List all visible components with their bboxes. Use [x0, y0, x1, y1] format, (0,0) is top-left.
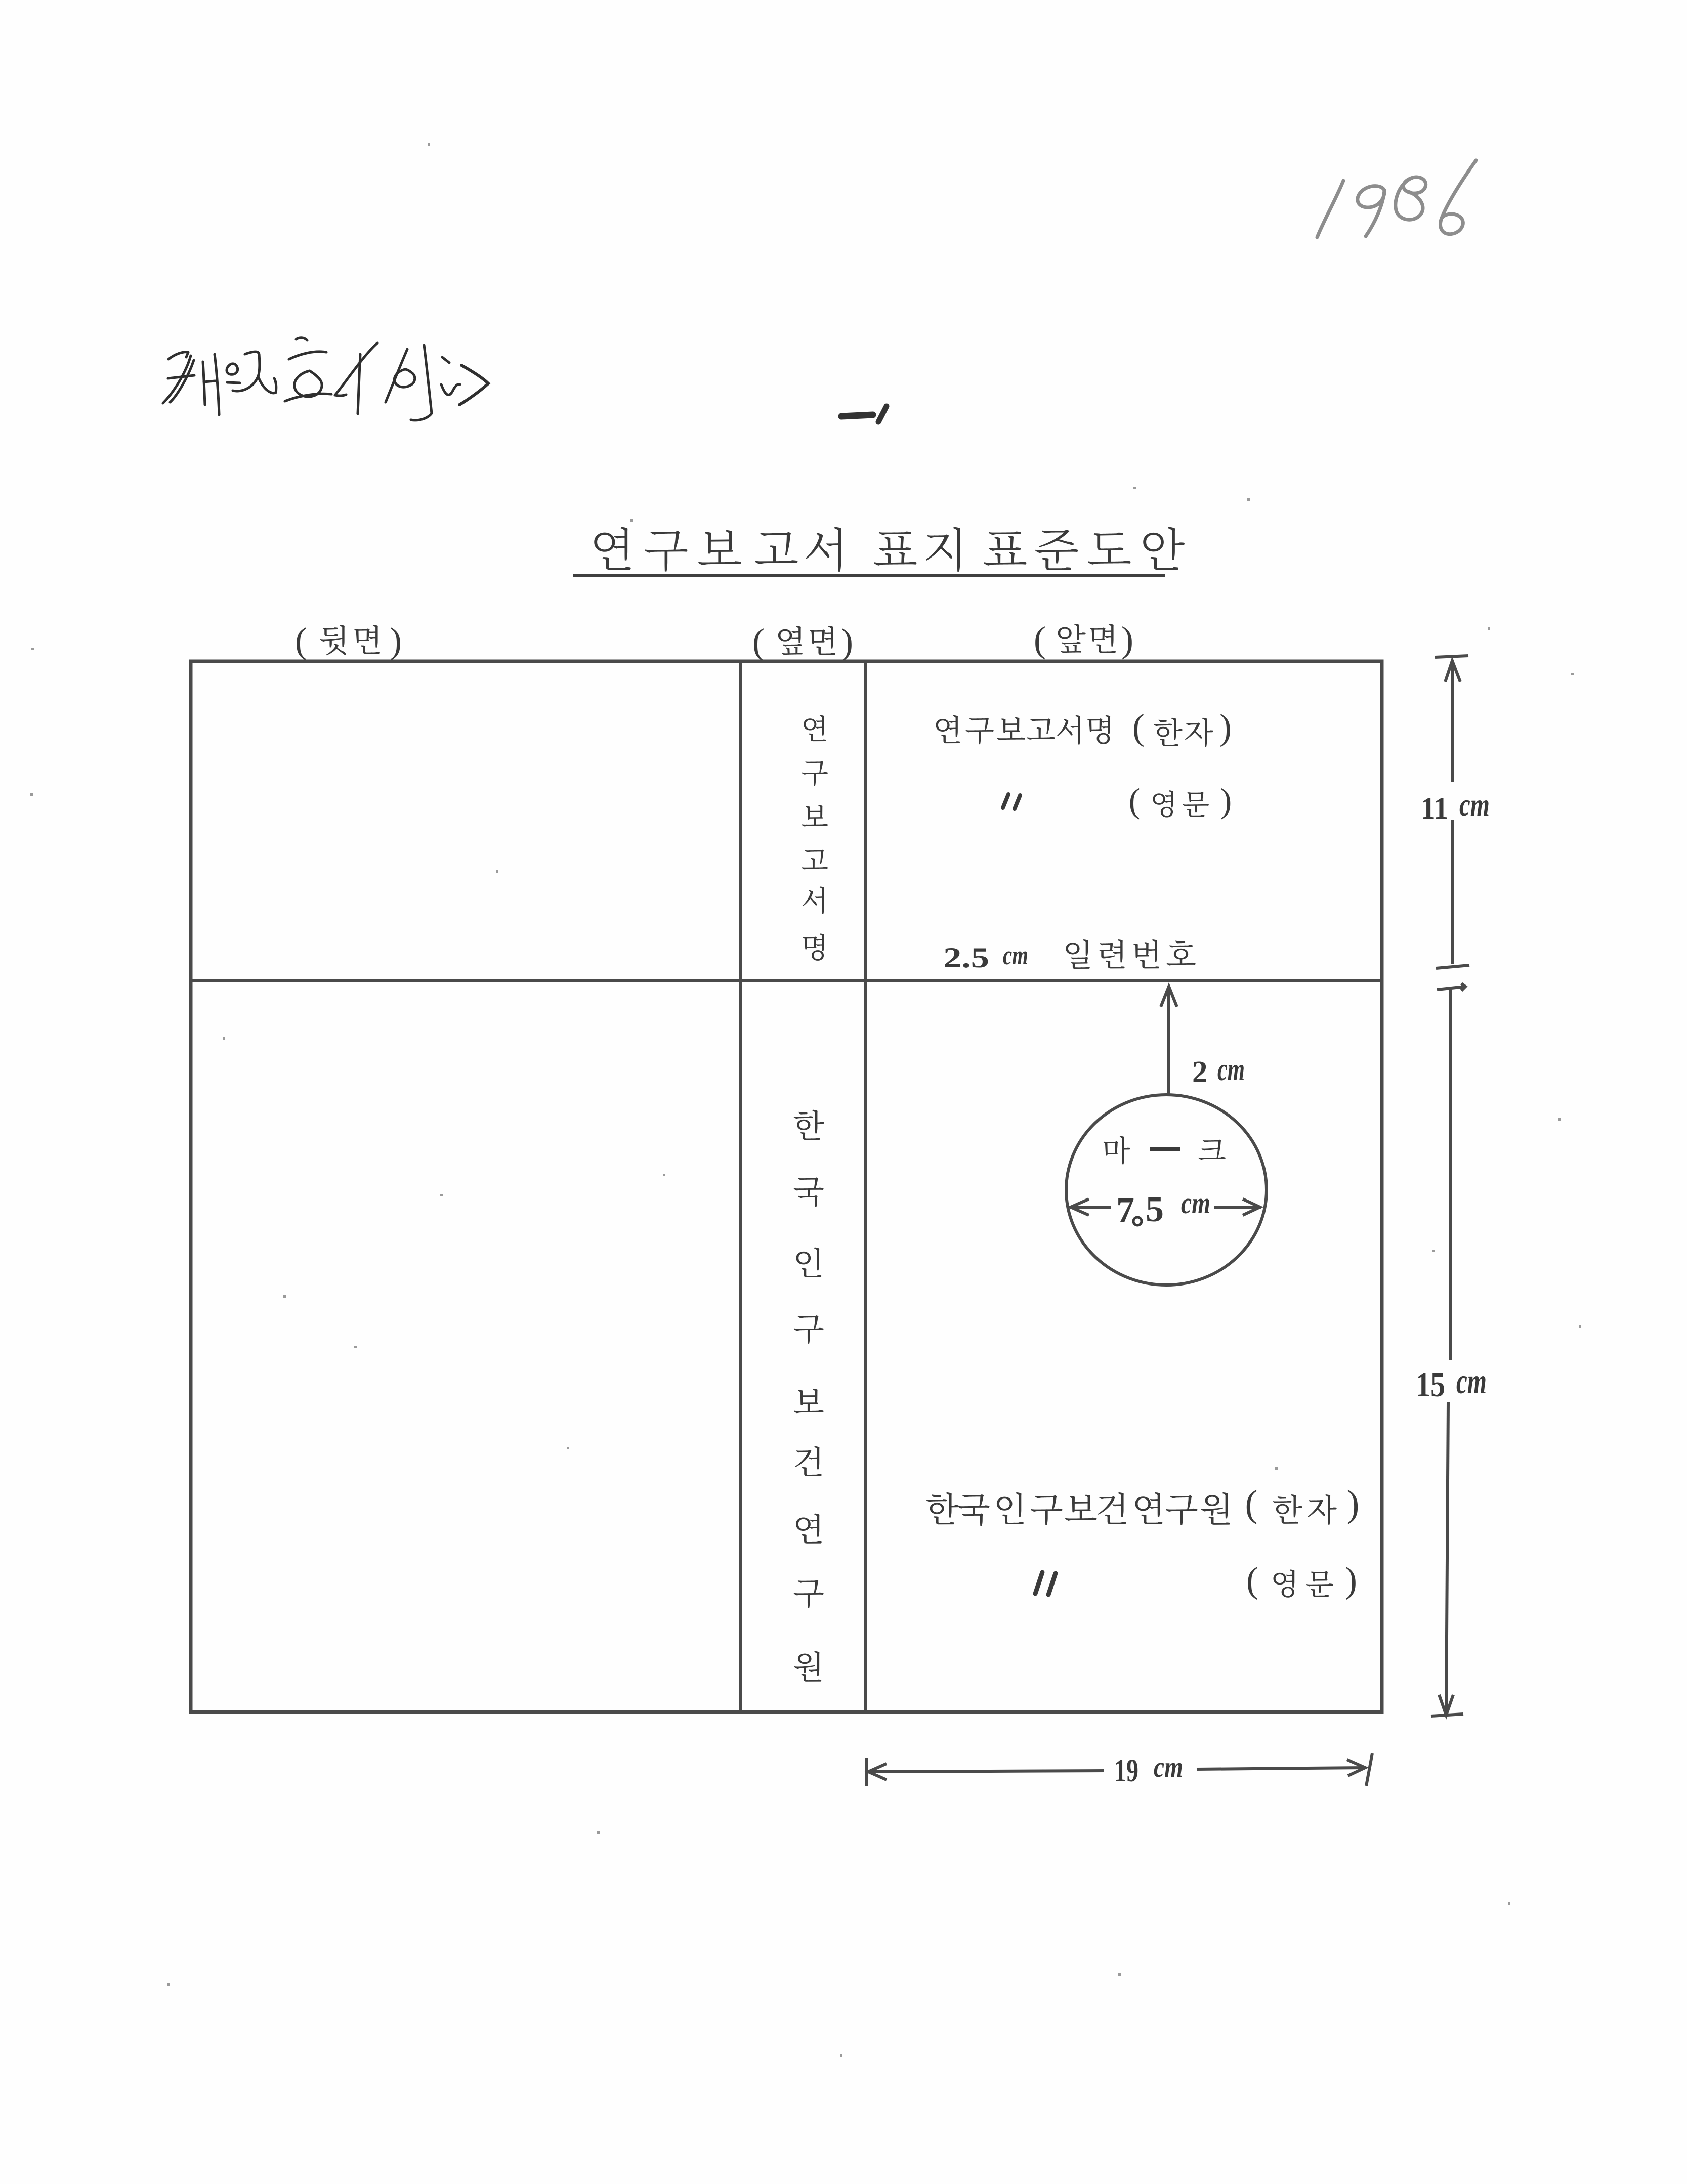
svg-text:): ): [1220, 781, 1232, 820]
svg-text:2.5: 2.5: [943, 942, 989, 974]
svg-text:): ): [1345, 1560, 1357, 1600]
svg-text:11: 11: [1421, 792, 1448, 826]
svg-text:2: 2: [1192, 1055, 1208, 1089]
svg-text:19: 19: [1114, 1752, 1138, 1789]
svg-text:(: (: [1034, 619, 1046, 660]
svg-text:cm: cm: [1003, 940, 1028, 970]
svg-text:5: 5: [1146, 1189, 1164, 1229]
svg-text:): ): [390, 620, 402, 661]
svg-text:cm: cm: [1456, 1361, 1487, 1401]
svg-text:15: 15: [1416, 1365, 1445, 1404]
svg-text:(: (: [1246, 1560, 1258, 1600]
svg-text:(: (: [1132, 707, 1145, 747]
svg-text:(: (: [1129, 781, 1141, 820]
svg-text:cm: cm: [1181, 1186, 1210, 1220]
svg-text:cm: cm: [1217, 1051, 1245, 1087]
svg-text:): ): [1219, 707, 1232, 747]
svg-text:(: (: [752, 621, 765, 662]
svg-text:): ): [841, 621, 853, 662]
svg-text:): ): [1121, 619, 1133, 660]
svg-text:(: (: [295, 620, 307, 661]
svg-text:(: (: [1245, 1483, 1258, 1525]
svg-text:cm: cm: [1154, 1750, 1183, 1783]
svg-text:7: 7: [1116, 1190, 1134, 1230]
svg-text:cm: cm: [1459, 787, 1490, 823]
svg-text:): ): [1347, 1483, 1360, 1525]
